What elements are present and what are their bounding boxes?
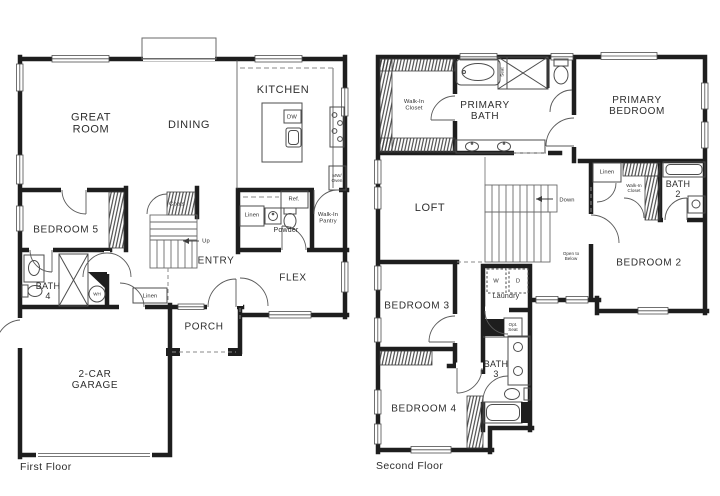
kitchen-fixtures <box>237 60 346 208</box>
sink-counter <box>24 255 44 282</box>
stairs-up <box>150 215 197 268</box>
bath3-vanity <box>508 336 530 385</box>
linen-cabinet <box>133 288 167 303</box>
powder-sink-counter <box>265 208 281 224</box>
coats-closet-hatch <box>167 192 195 215</box>
toilet-bowl <box>554 66 568 84</box>
toilet-bowl <box>28 286 42 297</box>
floorplan-drawing <box>0 0 720 496</box>
powder-fixtures <box>240 206 296 229</box>
washer-box <box>487 269 506 293</box>
bath4-fixtures <box>22 254 167 306</box>
second-floor-doors <box>429 90 687 401</box>
toilet-bowl <box>505 389 520 400</box>
dishwasher <box>284 110 301 123</box>
first-floor-caption: First Floor <box>20 461 72 473</box>
refrigerator <box>281 191 308 208</box>
bedroom5-closet-hatch <box>109 192 124 248</box>
first-floor-plan <box>0 38 348 459</box>
first-floor-windows <box>17 56 349 457</box>
linen-closet <box>240 206 264 226</box>
stairs-down <box>485 157 557 262</box>
dryer-box <box>509 269 528 293</box>
second-floor-caption: Second Floor <box>376 460 443 472</box>
down-arrow <box>536 196 553 202</box>
bath2-sink <box>692 200 700 208</box>
linen-closet <box>593 163 621 182</box>
water-heater <box>89 286 105 302</box>
bath2-vanity <box>688 196 705 213</box>
floorplan-canvas: GREAT ROOM DINING KITCHEN BEDROOM 5 BATH… <box>0 0 720 496</box>
toilet-tank <box>22 285 28 297</box>
second-floor-plan <box>375 53 709 454</box>
